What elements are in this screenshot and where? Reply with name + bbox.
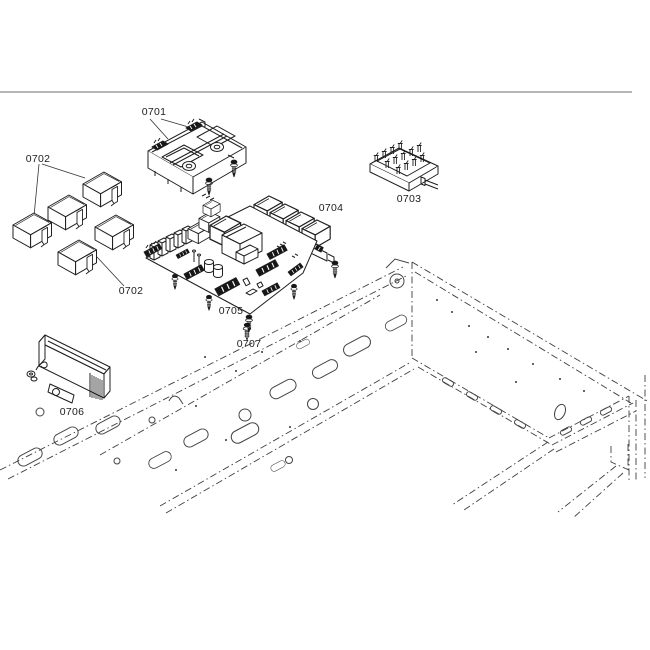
callout-0701: 0701 <box>142 106 167 118</box>
parts-diagram-page: 0701 0702 0702 0703 0704 0705 0706 0707 <box>0 0 650 650</box>
callout-0707: 0707 <box>237 338 262 350</box>
part-0702-relay-covers <box>13 172 134 275</box>
part-0701-control-module <box>148 119 246 195</box>
mounting-bracket <box>48 384 74 403</box>
screw-icon <box>332 261 339 278</box>
relay-cover <box>95 215 134 250</box>
screw-icon <box>291 284 297 299</box>
part-0706-power-module <box>27 335 110 403</box>
chassis-rivet-dots <box>175 299 585 471</box>
callout-0703: 0703 <box>397 193 422 205</box>
callout-0705: 0705 <box>219 305 244 317</box>
relay-cover <box>58 240 97 275</box>
screw-icon <box>172 274 178 289</box>
relay-cover <box>13 213 52 248</box>
relay-cover <box>48 195 87 230</box>
part-0703-terminal-block <box>370 141 438 192</box>
callout-0706: 0706 <box>60 406 85 418</box>
side-panel-top-edge <box>412 262 637 395</box>
callout-0704: 0704 <box>319 202 344 214</box>
screw-icon <box>206 295 212 310</box>
relay-cover <box>83 172 122 207</box>
callout-0702-top: 0702 <box>26 153 51 165</box>
front-panel-bottom-edge <box>160 362 411 506</box>
relay-cube <box>203 200 220 217</box>
diagram-line-art <box>0 0 650 650</box>
callout-0702-bottom: 0702 <box>119 285 144 297</box>
leader-0702-bottom <box>97 257 124 286</box>
